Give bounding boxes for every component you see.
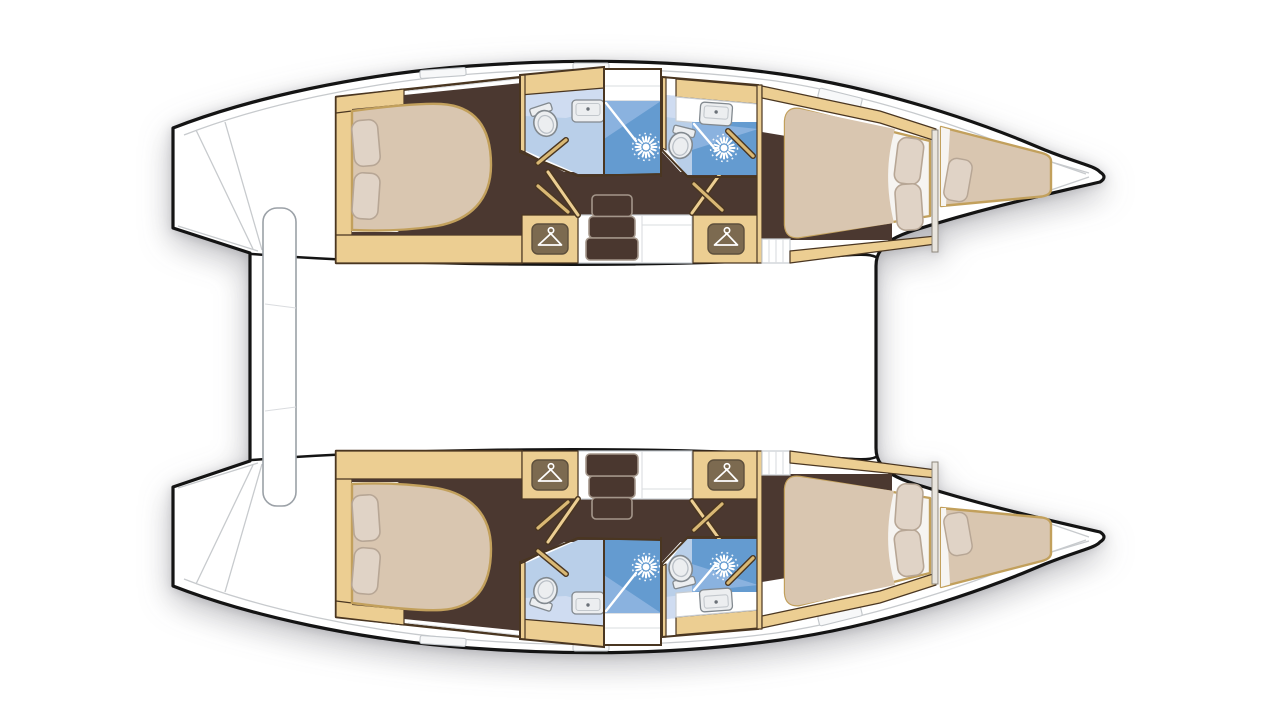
catamaran: [173, 61, 1104, 652]
hanger-icon: [532, 224, 568, 254]
cockpit-bench: [263, 208, 296, 506]
hanger-icon: [708, 460, 744, 490]
boat-diagram: Catamaran interior layout — deck plan, t…: [0, 0, 1280, 711]
catamaran-floorplan-page: Catamaran interior layout — deck plan, t…: [0, 0, 1280, 711]
hanger-icon: [532, 460, 568, 490]
hanger-icon: [708, 224, 744, 254]
aft-platform: [263, 208, 296, 506]
floorplan-svg: Catamaran interior layout — deck plan, t…: [0, 0, 1280, 711]
